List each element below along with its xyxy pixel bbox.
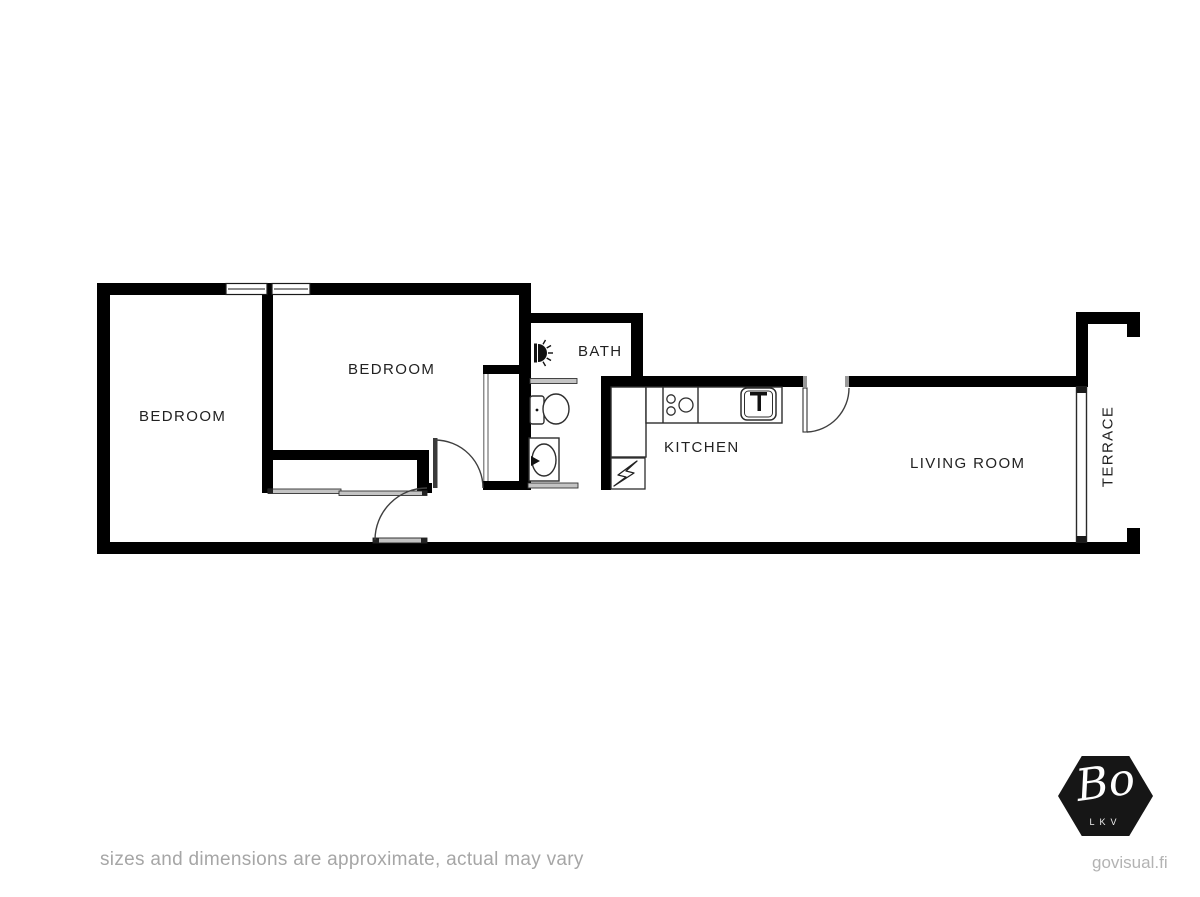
entry-door <box>803 376 849 432</box>
bath-sliding-door-upper <box>530 379 577 384</box>
kitchen-top-wall <box>601 376 806 387</box>
disclaimer-text: sizes and dimensions are approximate, ac… <box>100 849 584 871</box>
entry-door-jamb-left <box>803 376 807 387</box>
entry-door-swing-arc <box>807 388 849 432</box>
wardrobe-front-doors <box>484 374 488 481</box>
hall-door <box>373 488 427 543</box>
closet-sliding-doors <box>268 489 427 496</box>
room-label-bath: BATH <box>578 344 623 359</box>
bedroom2-door-swing-arc <box>435 440 483 488</box>
terrace-stub-bottom <box>1127 528 1140 554</box>
electrical-panel <box>611 458 645 489</box>
bedroom2-door-leaf <box>433 438 438 488</box>
floorplan-drawing <box>0 0 1200 897</box>
room-label-living-room: LIVING ROOM <box>910 456 1025 471</box>
kitchen-sink-icon <box>741 388 776 420</box>
kitchen-left-wall <box>601 376 611 490</box>
bath-sliding-door-lower <box>528 483 578 488</box>
bath-sink-icon <box>529 438 559 481</box>
room-label-terrace: TERRACE <box>1100 397 1117 497</box>
shower-icon <box>534 340 553 366</box>
room-label-bedroom1: BEDROOM <box>139 409 226 424</box>
room-label-bedroom2: BEDROOM <box>348 362 435 377</box>
wardrobe-top-wall <box>483 365 531 374</box>
kitchen-tall-unit <box>611 387 646 457</box>
hall-door-leaf <box>373 538 427 543</box>
top-wall-bedrooms <box>97 283 530 295</box>
bottom-wall <box>97 542 1140 554</box>
bedroom-divider-wall <box>262 295 273 493</box>
wardrobe-bottom-wall <box>483 481 531 490</box>
bath-top-wall <box>519 313 643 323</box>
window-terrace-glass-wall <box>1077 387 1087 542</box>
bedroom2-bottom-wall <box>262 450 428 460</box>
room-label-kitchen: KITCHEN <box>664 440 740 455</box>
window-bedroom2 <box>272 284 310 295</box>
window-bedroom1 <box>226 284 267 295</box>
entry-door-leaf <box>803 388 807 432</box>
terrace-stub-top <box>1127 312 1140 337</box>
floorplan-canvas: BEDROOM BEDROOM BATH KITCHEN LIVING ROOM… <box>0 0 1200 897</box>
entry-door-jamb-right <box>845 376 849 387</box>
toilet-icon <box>530 394 569 424</box>
bath-right-wall <box>631 313 643 387</box>
website-text: govisual.fi <box>1092 853 1168 873</box>
left-wall <box>97 283 110 554</box>
living-top-wall <box>849 376 1087 387</box>
bedroom2-door <box>433 438 483 488</box>
